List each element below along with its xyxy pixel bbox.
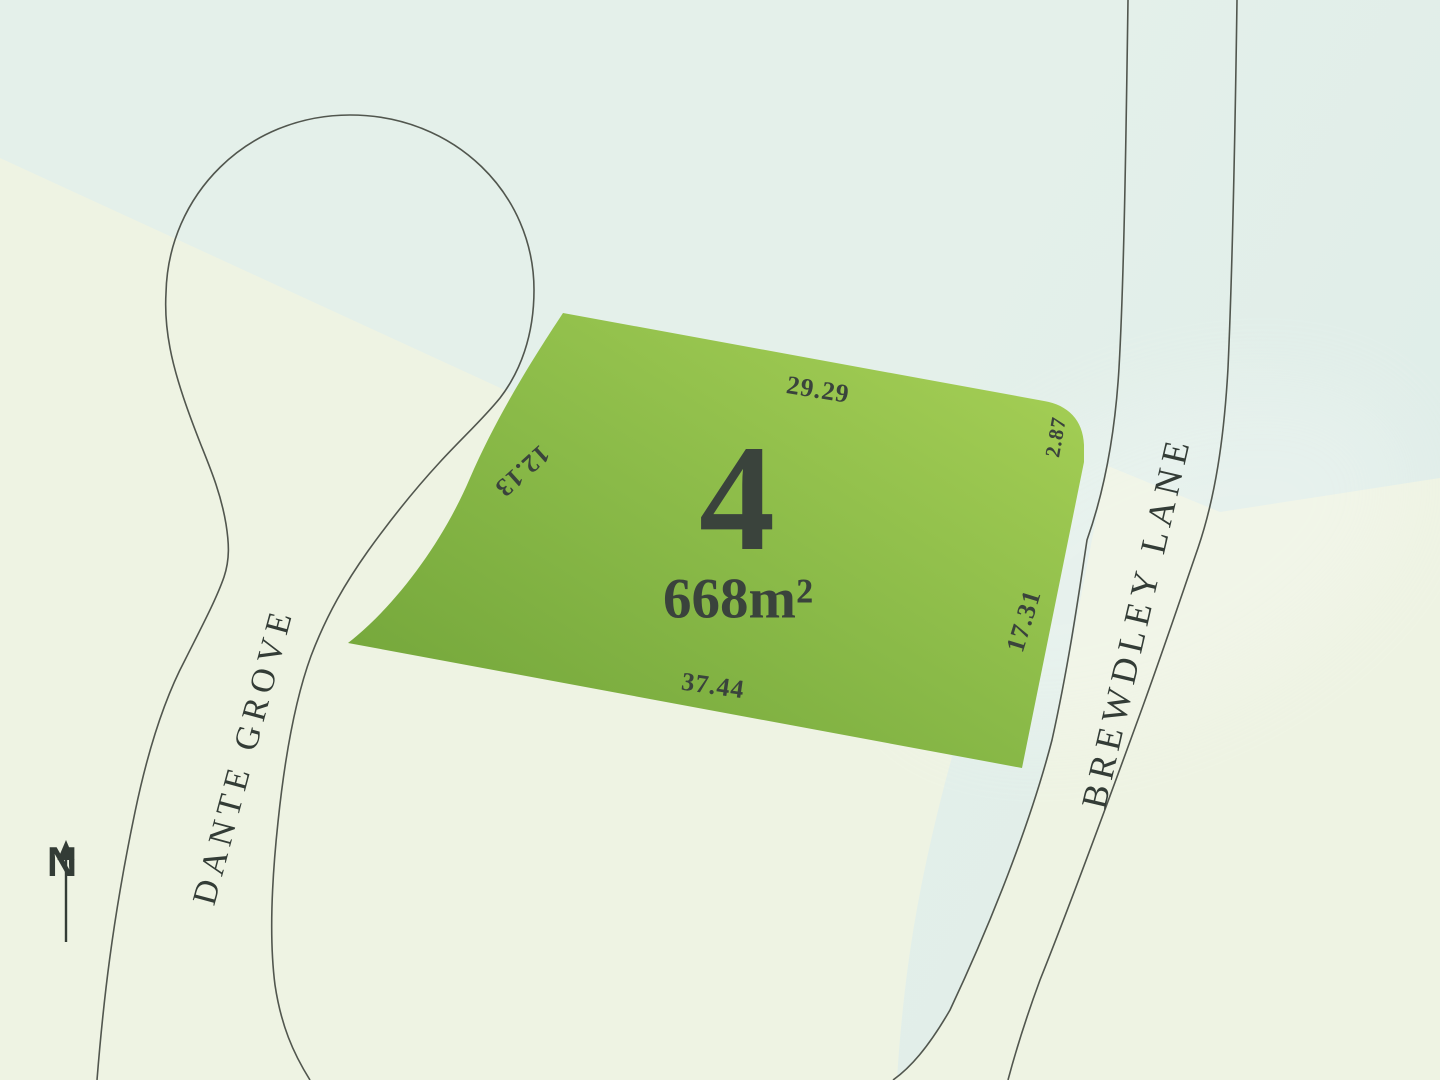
north-arrow-icon <box>30 838 100 954</box>
lot-number: 4 <box>699 422 777 574</box>
lot-plan-map: 4 668m² 29.29 2.87 17.31 37.44 12.13 DAN… <box>0 0 1440 1080</box>
lot-area: 668m² <box>663 571 813 628</box>
north-indicator: N <box>30 838 100 998</box>
